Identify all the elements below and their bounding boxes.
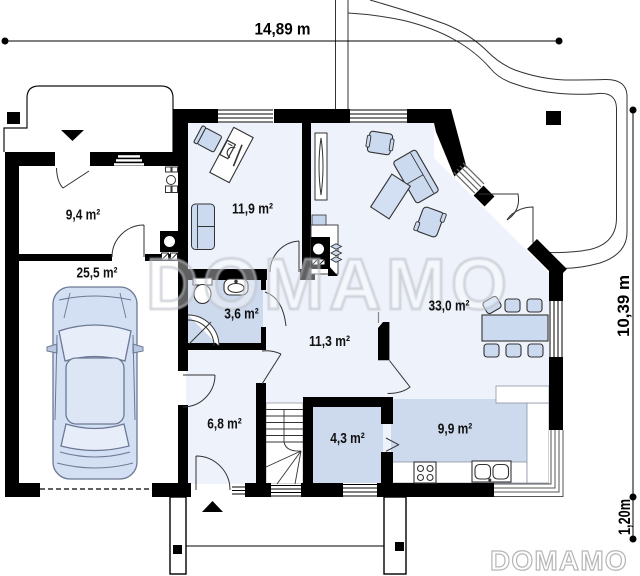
svg-text:9,9 m²: 9,9 m² <box>438 421 473 438</box>
svg-text:9,4 m²: 9,4 m² <box>66 207 101 224</box>
svg-text:11,9 m²: 11,9 m² <box>232 201 273 218</box>
svg-text:11,3 m²: 11,3 m² <box>309 333 350 350</box>
svg-text:DOMAMO: DOMAMO <box>490 545 628 576</box>
svg-text:10,39 m: 10,39 m <box>614 275 633 337</box>
svg-text:6,8 m²: 6,8 m² <box>207 416 242 433</box>
svg-text:1,20m: 1,20m <box>615 499 634 535</box>
svg-text:25,5 m²: 25,5 m² <box>77 265 118 282</box>
svg-text:4,3 m²: 4,3 m² <box>330 430 365 447</box>
svg-text:14,89 m: 14,89 m <box>255 20 311 39</box>
svg-text:3,6 m²: 3,6 m² <box>224 306 259 323</box>
svg-text:33,0 m²: 33,0 m² <box>429 298 470 315</box>
